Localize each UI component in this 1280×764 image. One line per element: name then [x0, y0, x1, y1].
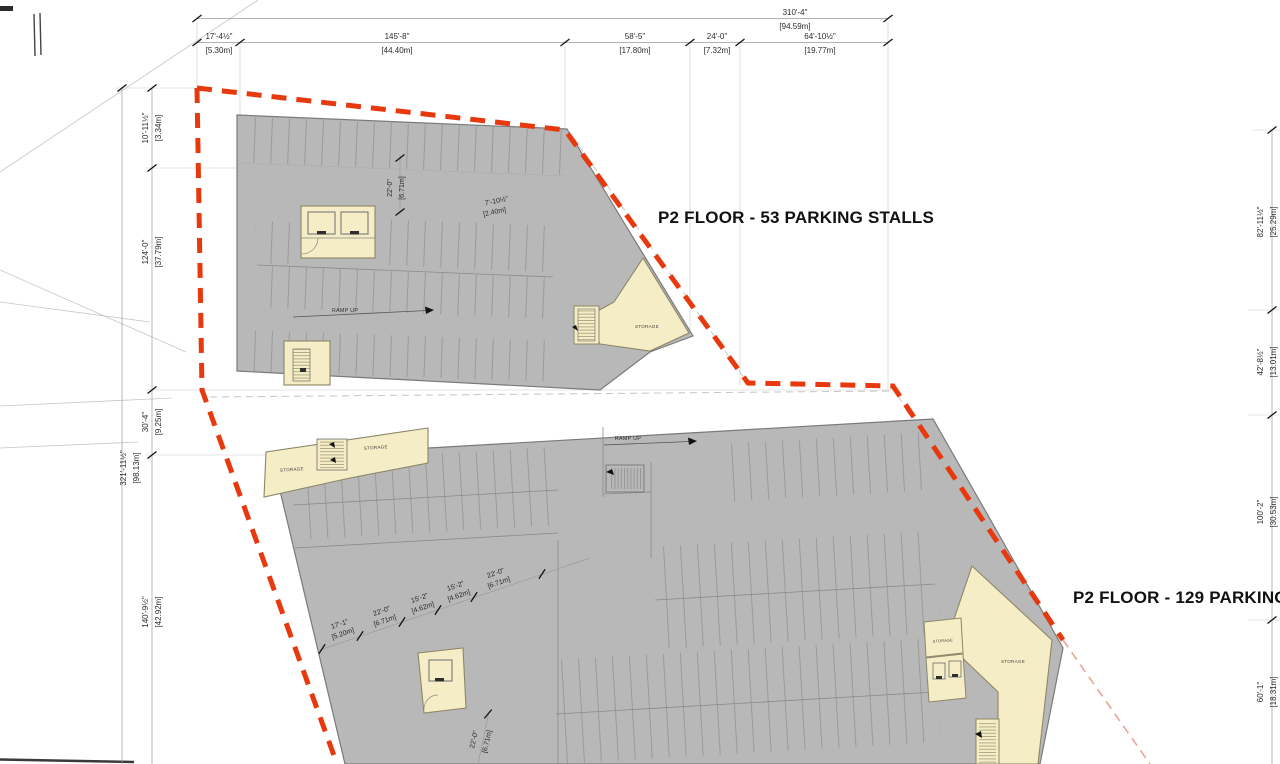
dim-right1-m: [25.29m]: [1269, 206, 1278, 237]
dim-right4-ft: 60'-1": [1256, 682, 1265, 703]
dim-left1-ft: 10'-11½": [141, 112, 150, 143]
dim-left1-m: [3.34m]: [154, 115, 163, 142]
floor-plan-canvas: STORAGE RAMP UP: [0, 0, 1280, 764]
dim-overall-width-m: [94.59m]: [779, 22, 810, 31]
dim-right3-ft: 100'-2": [1256, 499, 1265, 524]
dim-right1-ft: 82'-11½": [1256, 206, 1265, 237]
title-upper-floor: P2 FLOOR - 53 PARKING STALLS: [658, 208, 934, 227]
dim-seg1-ft: 17'-4½": [205, 32, 232, 41]
property-line-faded: [1063, 640, 1150, 764]
dim-left4-ft: 140'-9½": [141, 596, 150, 628]
dim-right4-m: [18.31m]: [1269, 676, 1278, 707]
left-dimensions: 321'-11½" [98.13m] 10'-11½" [3.34m] 124'…: [118, 85, 164, 764]
dim-seg5-ft: 64'-10½": [804, 32, 836, 41]
elevator-cab: [341, 212, 368, 234]
dim-seg2-ft: 145'-8": [385, 32, 410, 41]
top-dimensions: 310'-4" [94.59m] 17'-4½" [5.30m] 145'-8"…: [193, 8, 893, 55]
dim-seg2-m: [44.40m]: [381, 46, 412, 55]
parking-plan-sheet: STORAGE RAMP UP: [0, 0, 1280, 764]
title-lower-floor: P2 FLOOR - 129 PARKING S: [1073, 588, 1280, 607]
dim-stall-depth-ft: 22'-0": [387, 179, 394, 197]
clipped-drawing-mark: [0, 6, 13, 11]
site-edge-line: [0, 760, 134, 763]
dim-seg1-m: [5.30m]: [206, 46, 233, 55]
dim-overall-width-ft: 310'-4": [783, 8, 808, 17]
dim-left2-m: [37.79m]: [154, 236, 163, 267]
dim-seg3-m: [17.80m]: [619, 46, 650, 55]
dim-seg3-ft: 58'-5": [625, 32, 646, 41]
ramp-up-label: RAMP UP: [332, 308, 358, 314]
dim-left3-m: [9.25m]: [154, 409, 163, 436]
lower-elevator-room: [418, 648, 466, 713]
lower-garage: RAMP UP STORAGE STORAGE: [264, 419, 1063, 764]
storage-label: STORAGE: [635, 324, 659, 329]
dim-seg4-m: [7.32m]: [704, 46, 731, 55]
storage-label: STORAGE: [1001, 659, 1025, 664]
upper-garage: STORAGE RAMP UP: [237, 115, 693, 390]
upper-elevator-core: [301, 206, 375, 258]
dim-left-overall-ft: 321'-11½": [119, 450, 128, 486]
dim-seg5-m: [19.77m]: [804, 46, 835, 55]
dim-right3-m: [30.53m]: [1269, 496, 1278, 527]
dim-left3-ft: 30'-4": [141, 412, 150, 433]
elevator-cab: [308, 212, 335, 234]
right-dimensions: 82'-11½" [25.29m] 42'-8½" [13.01m] 100'-…: [1256, 127, 1278, 764]
dim-seg4-ft: 24'-0": [707, 32, 728, 41]
context-lines: [0, 0, 258, 762]
dim-left-overall-m: [98.13m]: [132, 452, 141, 483]
dim-left2-ft: 124'-0": [141, 239, 150, 264]
dim-right2-m: [13.01m]: [1269, 346, 1278, 377]
upper-stair: [284, 341, 330, 385]
ramp-up-label: RAMP UP: [615, 436, 641, 442]
dim-right2-ft: 42'-8½": [1256, 348, 1265, 375]
dim-stall-depth-m: [6.71m]: [399, 176, 406, 199]
dim-left4-m: [42.92m]: [154, 596, 163, 627]
